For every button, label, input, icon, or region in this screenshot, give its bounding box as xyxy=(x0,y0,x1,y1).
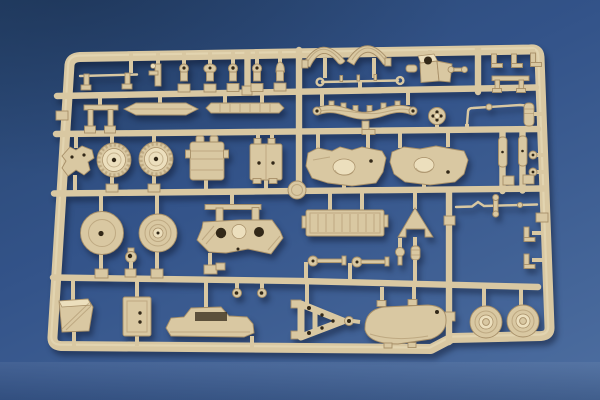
part-funnel xyxy=(398,191,433,284)
part-wedge xyxy=(59,281,93,346)
runner-block xyxy=(56,111,68,120)
part-bogie xyxy=(197,194,283,274)
part-hull-right xyxy=(390,129,468,190)
part-towbar xyxy=(291,282,360,339)
part-wheel-1 xyxy=(470,288,502,342)
part-hull-left xyxy=(306,130,386,191)
part-wheel-2 xyxy=(507,288,539,340)
part-disc-ribbed xyxy=(139,194,177,278)
part-axles xyxy=(306,238,405,282)
part-body xyxy=(365,286,452,348)
part-goalpost xyxy=(84,93,118,133)
part-link xyxy=(448,67,468,73)
part-strips xyxy=(499,136,535,185)
part-door xyxy=(123,281,151,346)
part-sprocket-2 xyxy=(139,133,173,192)
part-ribbed-plate xyxy=(302,192,388,237)
photo-scene xyxy=(0,0,600,400)
sprue xyxy=(51,46,549,349)
part-junction-disc xyxy=(288,181,306,199)
part-canister xyxy=(186,132,229,192)
part-disc-large xyxy=(81,194,124,278)
part-sprocket-1 xyxy=(97,135,131,192)
part-side-clips xyxy=(524,227,544,269)
part-tie-rod xyxy=(456,195,548,223)
part-box xyxy=(250,131,282,192)
part-ring xyxy=(125,248,137,278)
